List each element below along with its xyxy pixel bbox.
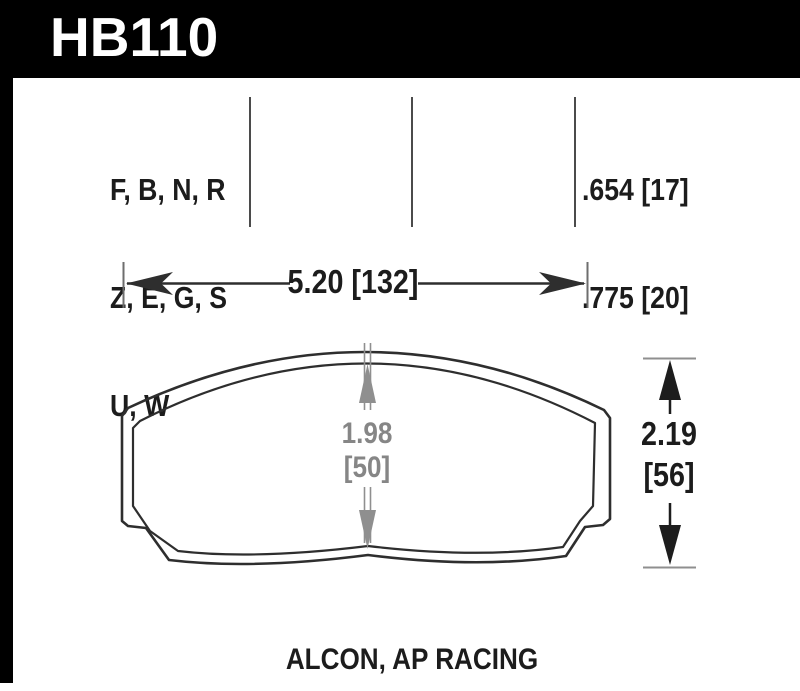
- column-separator: [411, 97, 413, 227]
- compound-codes-line: U, W: [110, 388, 227, 424]
- caliper-applications: ALCON, AP RACING: [282, 643, 543, 676]
- center-dim-up-arrow-icon: [359, 364, 376, 403]
- column-separator: [574, 97, 576, 227]
- thickness-value: .775 [20]: [582, 280, 689, 316]
- width-dim-right-arrow-icon: [539, 272, 586, 295]
- center-height-mm-label: [50]: [324, 451, 411, 484]
- thickness-values: .654 [17] .775 [20]: [582, 100, 689, 388]
- column-separator: [249, 97, 251, 227]
- part-number: HB110: [50, 10, 218, 65]
- compound-codes-line: Z, E, G, S: [110, 280, 227, 316]
- thickness-value: .654 [17]: [582, 172, 689, 208]
- catalog-diagram-page: HB110 F, B, N, R Z, E, G, S U, W .654 [1…: [0, 0, 800, 691]
- overall-height-mm-label: [56]: [626, 457, 713, 493]
- center-dim-down-arrow-icon: [359, 510, 376, 549]
- overall-height-inches-label: 2.19: [626, 416, 713, 452]
- center-height-inches-label: 1.98: [324, 417, 411, 450]
- compound-codes-line: F, B, N, R: [110, 172, 227, 208]
- header-bar: HB110: [0, 0, 800, 78]
- left-edge-strip: [0, 78, 13, 683]
- width-dimension-label: 5.20 [132]: [266, 264, 440, 300]
- compound-codes: F, B, N, R Z, E, G, S U, W: [110, 100, 227, 496]
- height-dim-down-arrow-icon: [659, 525, 681, 565]
